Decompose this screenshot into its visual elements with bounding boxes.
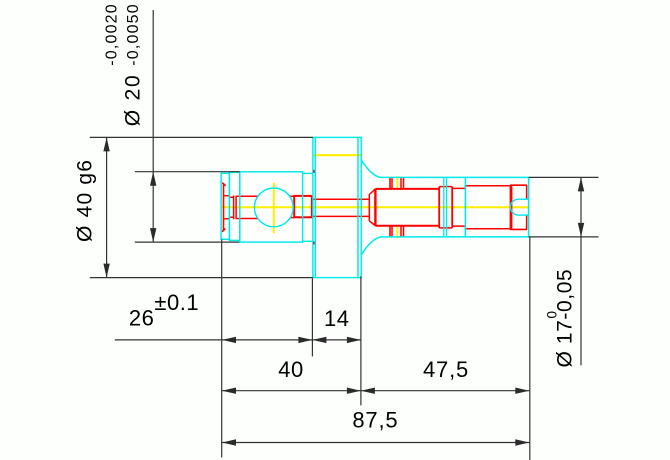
svg-text:-0,0020: -0,0020 [103, 3, 120, 66]
svg-text:14: 14 [324, 306, 349, 331]
svg-text:Ø 40 g6: Ø 40 g6 [74, 159, 97, 242]
svg-text:±0.1: ±0.1 [154, 290, 199, 315]
svg-text:40: 40 [278, 357, 303, 382]
svg-text:0: 0 [545, 310, 560, 318]
svg-text:-0,0050: -0,0050 [125, 3, 142, 66]
svg-text:Ø 20: Ø 20 [122, 73, 145, 126]
svg-text:47,5: 47,5 [423, 357, 469, 382]
svg-text:87,5: 87,5 [352, 408, 398, 433]
svg-text:26: 26 [129, 305, 154, 330]
